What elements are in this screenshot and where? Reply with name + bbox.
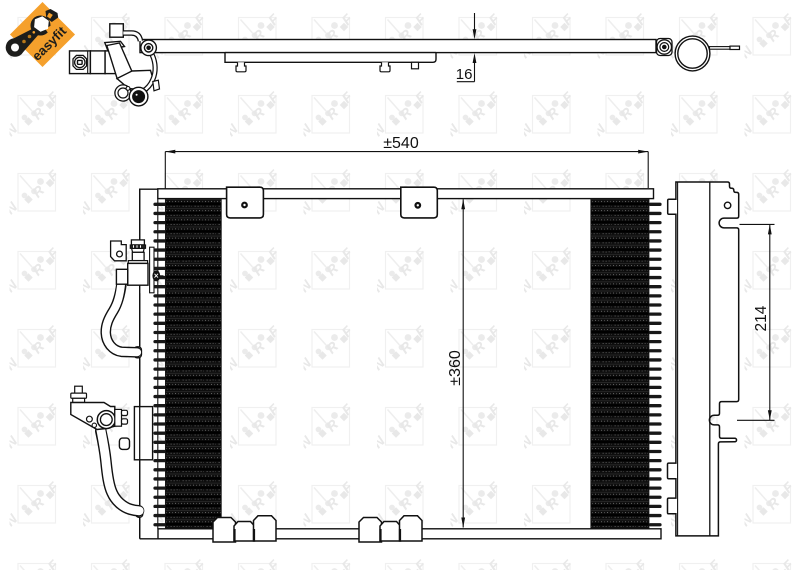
svg-text:16: 16	[456, 66, 473, 83]
svg-text:214: 214	[753, 305, 770, 331]
svg-text:±540: ±540	[383, 135, 419, 152]
svg-text:±360: ±360	[447, 350, 464, 386]
